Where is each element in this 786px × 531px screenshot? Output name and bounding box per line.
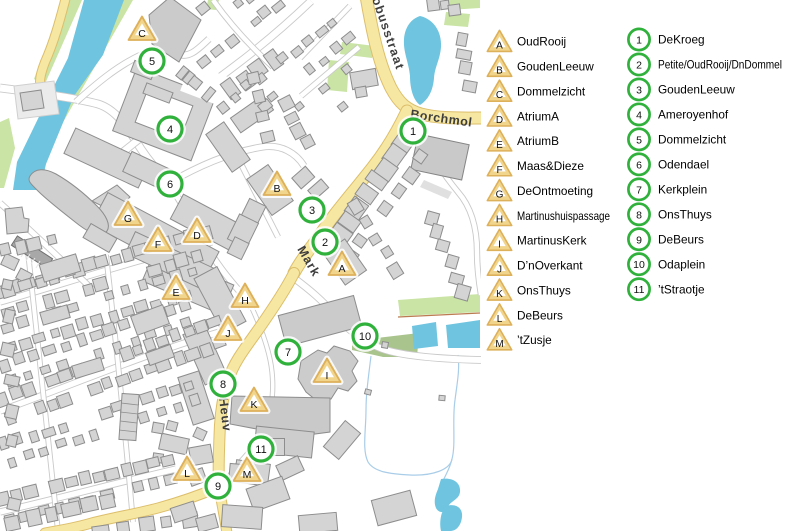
svg-text:OnsThuys: OnsThuys [517,283,571,297]
svg-text:10: 10 [633,259,645,271]
svg-text:F: F [496,165,502,176]
svg-text:1: 1 [410,126,416,138]
svg-text:M: M [243,469,252,481]
svg-text:AtriumB: AtriumB [517,134,559,148]
svg-text:L: L [184,468,190,480]
svg-text:OnsThuys: OnsThuys [658,208,712,222]
svg-text:GoudenLeeuw: GoudenLeeuw [658,83,735,97]
svg-text:B: B [273,183,280,195]
svg-text:Dommelzicht: Dommelzicht [658,133,727,147]
svg-text:C: C [496,90,503,101]
svg-text:E: E [172,287,179,299]
svg-text:G: G [124,213,132,225]
svg-text:2: 2 [636,59,642,71]
svg-text:Petite/OudRooij/DnDommel: Petite/OudRooij/DnDommel [658,58,782,72]
svg-text:K: K [250,399,257,411]
svg-text:GoudenLeeuw: GoudenLeeuw [517,60,594,74]
svg-text:4: 4 [636,109,642,121]
svg-text:5: 5 [636,134,642,146]
svg-text:9: 9 [636,234,642,246]
svg-text:10: 10 [359,331,371,343]
svg-text:11: 11 [255,444,266,456]
svg-text:8: 8 [636,209,642,221]
svg-text:6: 6 [636,159,642,171]
svg-text:1: 1 [636,35,642,47]
svg-text:J: J [225,328,230,340]
svg-text:7: 7 [285,347,291,359]
svg-text:’tStraotje: ’tStraotje [658,282,705,296]
svg-text:Odendael: Odendael [658,158,709,172]
svg-text:11: 11 [634,284,645,296]
svg-text:9: 9 [215,481,221,493]
svg-text:C: C [138,28,146,40]
svg-text:8: 8 [220,379,226,391]
svg-text:MartinusKerk: MartinusKerk [517,234,587,248]
svg-text:DeOntmoeting: DeOntmoeting [517,184,593,198]
svg-text:DeBeurs: DeBeurs [658,233,704,247]
svg-text:L: L [497,314,503,325]
svg-text:Ameroyenhof: Ameroyenhof [658,108,729,122]
svg-text:H: H [496,215,503,226]
svg-text:3: 3 [309,205,315,217]
svg-text:G: G [496,190,504,201]
svg-text:Odaplein: Odaplein [658,257,705,271]
svg-text:J: J [497,264,502,275]
svg-text:E: E [496,140,503,151]
svg-text:I: I [498,239,501,250]
svg-text:Maas&Dieze: Maas&Dieze [517,159,584,173]
svg-text:DeBeurs: DeBeurs [517,308,563,322]
svg-text:6: 6 [167,179,173,191]
svg-text:Kerkplein: Kerkplein [658,183,707,197]
svg-text:I: I [326,370,329,382]
svg-text:F: F [155,239,161,251]
svg-text:A: A [496,41,503,52]
svg-text:M: M [495,339,503,350]
svg-text:OudRooij: OudRooij [517,35,566,49]
svg-text:AtriumA: AtriumA [517,109,559,123]
svg-text:D: D [496,115,503,126]
svg-text:5: 5 [149,56,155,68]
svg-text:A: A [338,263,345,275]
svg-text:7: 7 [636,184,642,196]
svg-text:Dommelzicht: Dommelzicht [517,84,586,98]
svg-text:2: 2 [322,237,328,249]
svg-text:4: 4 [167,124,173,136]
svg-text:K: K [496,289,503,300]
svg-text:3: 3 [636,84,642,96]
svg-text:B: B [496,65,503,76]
svg-text:DeKroeg: DeKroeg [658,33,705,47]
svg-text:’tZusje: ’tZusje [517,333,552,347]
svg-text:H: H [241,295,249,307]
svg-text:D’nOverkant: D’nOverkant [517,259,583,273]
svg-text:Martinushuispassage: Martinushuispassage [517,209,610,223]
svg-text:D: D [193,230,201,242]
